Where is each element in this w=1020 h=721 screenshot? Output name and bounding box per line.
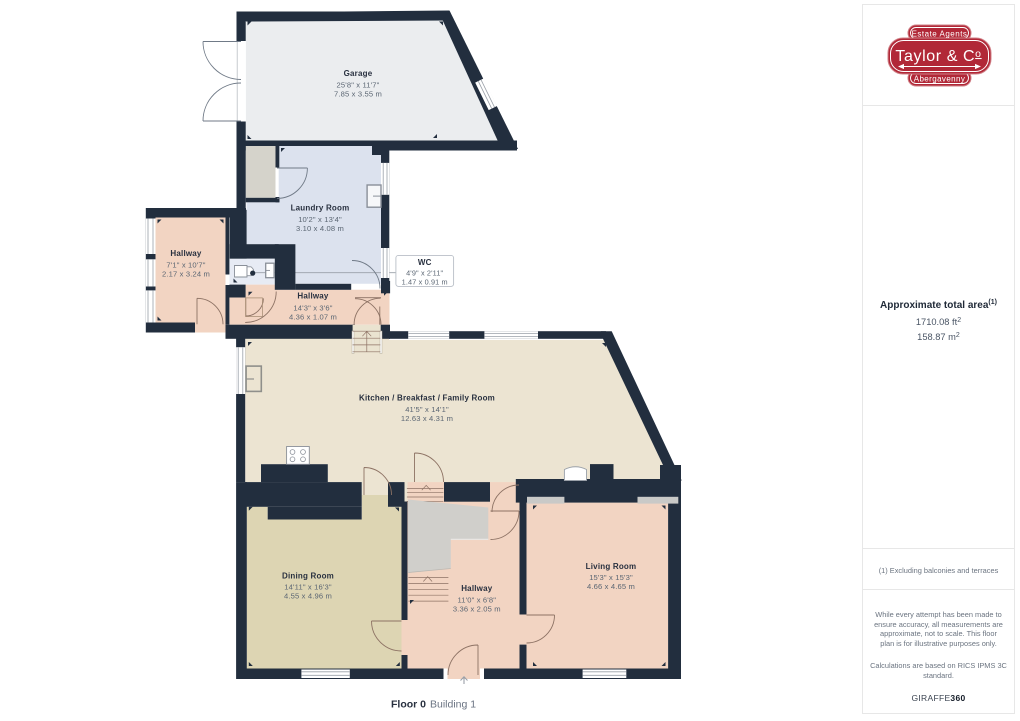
svg-text:Taylor & Co: Taylor & Co xyxy=(895,48,981,65)
svg-text:Hallway: Hallway xyxy=(461,584,493,593)
svg-text:Laundry Room: Laundry Room xyxy=(291,204,350,213)
svg-text:Floor 0: Floor 0 xyxy=(391,699,426,711)
svg-text:Estate Agents: Estate Agents xyxy=(912,30,968,39)
svg-text:10'2" x 13'4": 10'2" x 13'4" xyxy=(298,215,342,224)
svg-text:Garage: Garage xyxy=(344,69,373,78)
svg-text:Hallway: Hallway xyxy=(297,292,329,301)
svg-text:4.66 x 4.65 m: 4.66 x 4.65 m xyxy=(587,582,635,591)
svg-text:15'3" x 15'3": 15'3" x 15'3" xyxy=(589,573,633,582)
svg-text:3.36 x 2.05 m: 3.36 x 2.05 m xyxy=(453,605,501,614)
svg-text:7'1" x 10'7": 7'1" x 10'7" xyxy=(166,261,205,270)
svg-text:11'0" x 6'8": 11'0" x 6'8" xyxy=(457,596,496,605)
svg-text:25'8" x 11'7": 25'8" x 11'7" xyxy=(336,81,379,90)
svg-text:4.36 x 1.07 m: 4.36 x 1.07 m xyxy=(289,313,337,322)
svg-text:3.10 x 4.08 m: 3.10 x 4.08 m xyxy=(296,224,344,233)
svg-text:WC: WC xyxy=(418,258,432,267)
svg-text:4.55 x 4.96 m: 4.55 x 4.96 m xyxy=(284,592,332,601)
svg-text:12.63 x 4.31 m: 12.63 x 4.31 m xyxy=(401,414,453,423)
svg-text:Kitchen / Breakfast / Family R: Kitchen / Breakfast / Family Room xyxy=(359,394,495,403)
svg-text:Hallway: Hallway xyxy=(170,249,202,258)
svg-text:4'9" x 2'11": 4'9" x 2'11" xyxy=(406,269,443,278)
svg-text:Building 1: Building 1 xyxy=(430,699,476,711)
svg-text:14'11" x 16'3": 14'11" x 16'3" xyxy=(284,583,332,592)
svg-text:7.85 x 3.55 m: 7.85 x 3.55 m xyxy=(334,90,382,99)
svg-text:Dining Room: Dining Room xyxy=(282,572,334,581)
svg-text:Abergavenny: Abergavenny xyxy=(914,75,966,84)
svg-text:41'5" x 14'1": 41'5" x 14'1" xyxy=(405,405,449,414)
svg-text:1.47 x 0.91 m: 1.47 x 0.91 m xyxy=(402,278,448,287)
svg-text:2.17 x 3.24 m: 2.17 x 3.24 m xyxy=(162,270,210,279)
svg-text:14'3" x 3'6": 14'3" x 3'6" xyxy=(293,304,332,313)
svg-text:Living Room: Living Room xyxy=(586,562,637,571)
